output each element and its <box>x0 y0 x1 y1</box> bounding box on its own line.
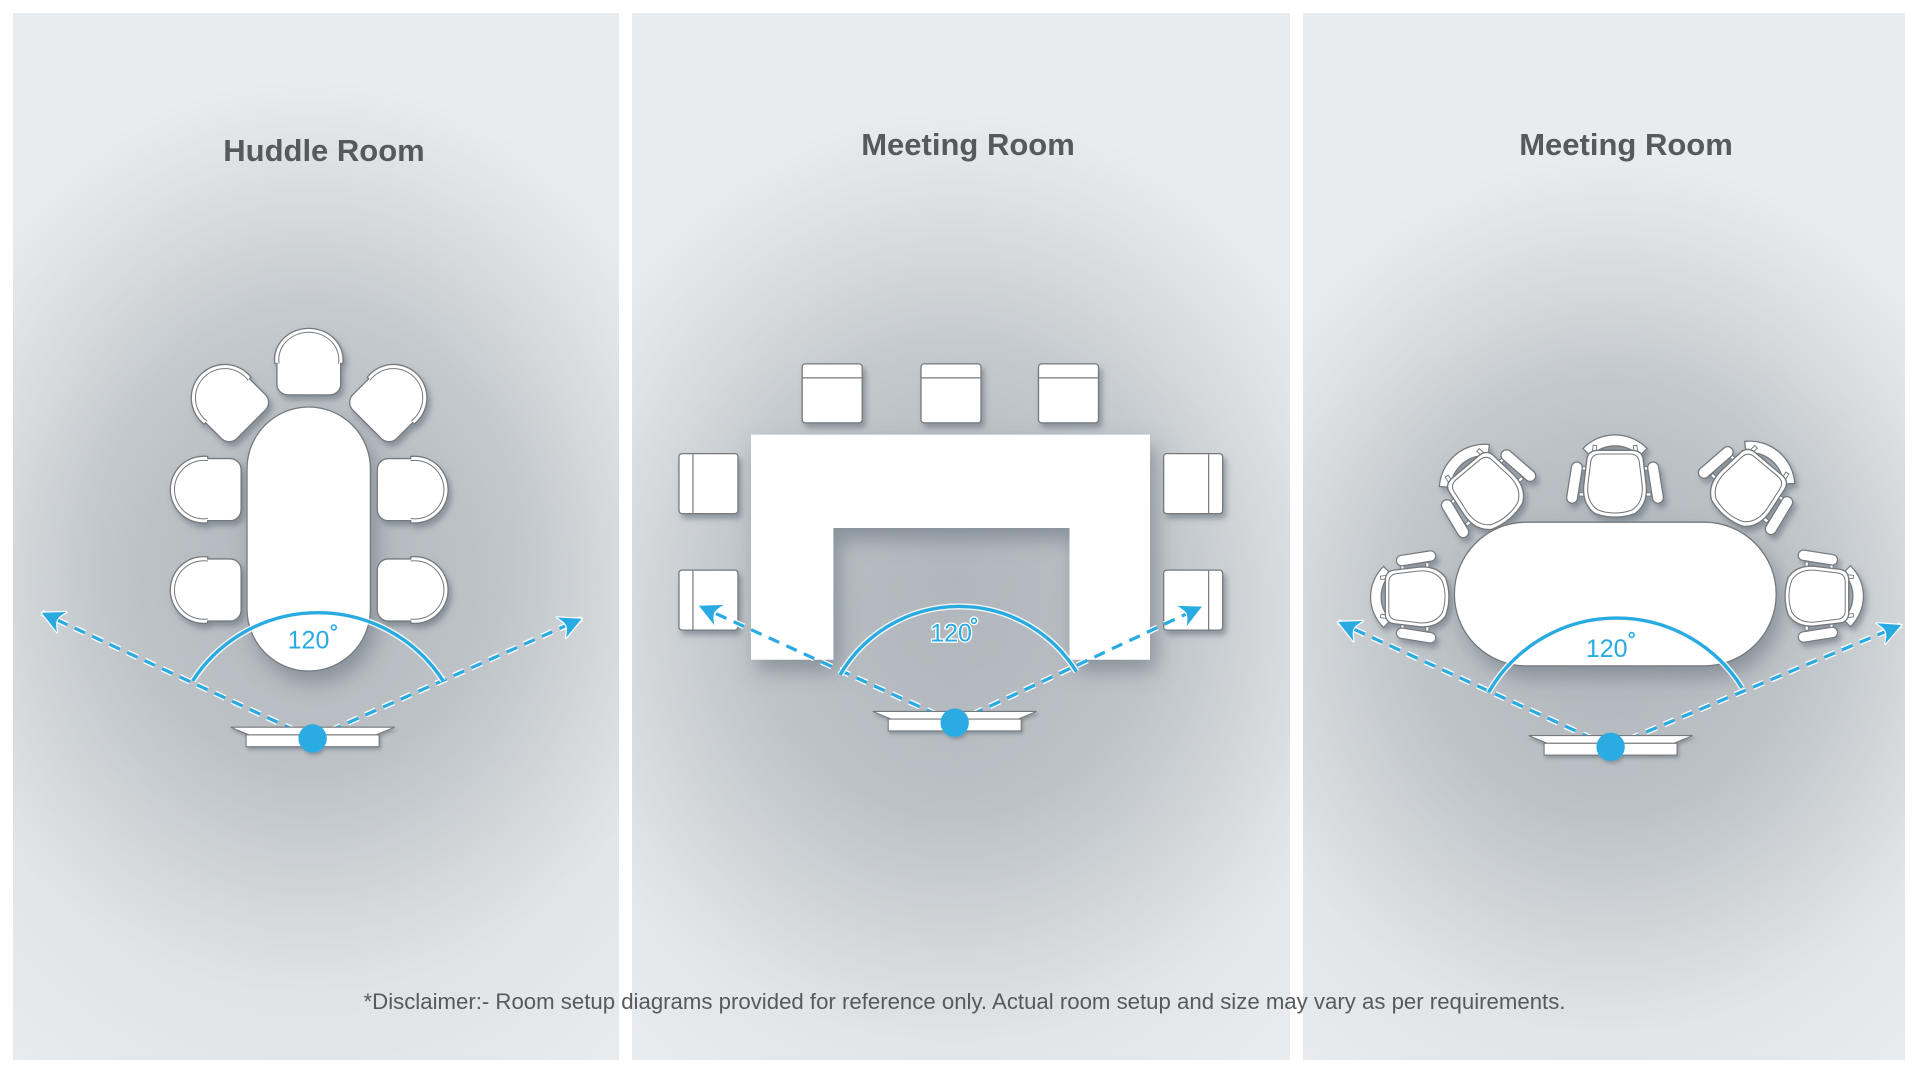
svg-text:120: 120 <box>930 620 972 648</box>
svg-text:120: 120 <box>1586 635 1628 663</box>
svg-text:120: 120 <box>288 627 330 655</box>
